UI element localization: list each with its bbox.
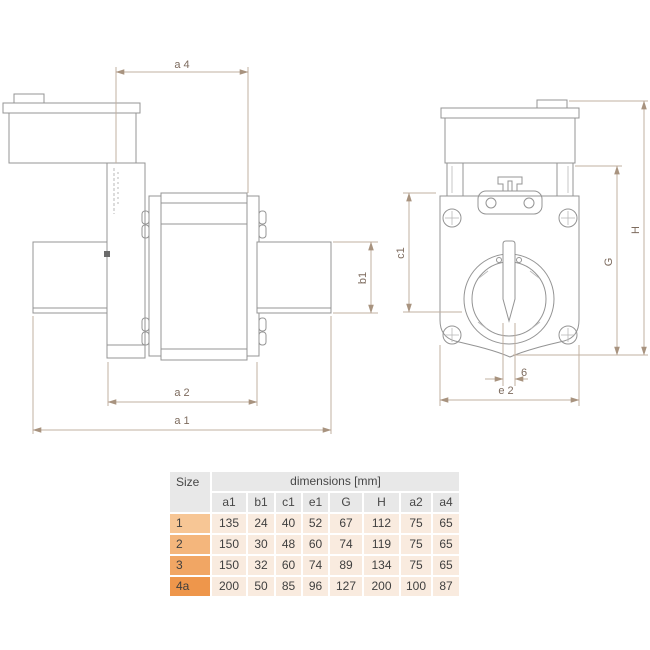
dimension-cell: 135 bbox=[212, 514, 246, 533]
dimension-cell: 40 bbox=[276, 514, 301, 533]
dim-label-a4: a 4 bbox=[174, 59, 189, 71]
dimension-cell: 50 bbox=[248, 577, 274, 596]
dim-label-c1: c1 bbox=[395, 247, 407, 259]
dimensions-table: Size dimensions [mm] a1 b1 c1 e1 G H a2 … bbox=[168, 470, 461, 598]
dimension-cell: 100 bbox=[401, 577, 431, 596]
dimension-cell: 150 bbox=[212, 535, 246, 554]
front-bracket bbox=[478, 191, 542, 214]
column-header-H: H bbox=[364, 493, 399, 512]
table-row: 1 135 24 40 52 67 112 75 65 bbox=[170, 514, 459, 533]
dimension-cell: 75 bbox=[401, 556, 431, 575]
dim-label-a1: a 1 bbox=[174, 415, 189, 427]
column-header-a1: a1 bbox=[212, 493, 246, 512]
dimension-cell: 65 bbox=[433, 535, 459, 554]
side-box-flange bbox=[3, 103, 140, 113]
dimension-cell: 60 bbox=[303, 535, 328, 554]
dimension-cell: 24 bbox=[248, 514, 274, 533]
indicator-blade bbox=[503, 241, 515, 321]
dim-label-G: G bbox=[603, 258, 615, 267]
column-header-b1: b1 bbox=[248, 493, 274, 512]
dimension-cell: 134 bbox=[364, 556, 399, 575]
dimension-cell: 67 bbox=[330, 514, 362, 533]
front-box-flange bbox=[441, 108, 579, 118]
dimension-cell: 74 bbox=[303, 556, 328, 575]
dimension-cell: 52 bbox=[303, 514, 328, 533]
table-row: 3 150 32 60 74 89 134 75 65 bbox=[170, 556, 459, 575]
size-cell: 2 bbox=[170, 535, 210, 554]
dimension-cell: 119 bbox=[364, 535, 399, 554]
size-cell: 4a bbox=[170, 577, 210, 596]
column-header-a2: a2 bbox=[401, 493, 431, 512]
table-row: 4a 200 50 85 96 127 200 100 87 bbox=[170, 577, 459, 596]
dimension-cell: 200 bbox=[212, 577, 246, 596]
dimension-cell: 30 bbox=[248, 535, 274, 554]
right-blade-contact bbox=[257, 242, 331, 313]
cartridge-body bbox=[161, 193, 247, 360]
front-key-slot bbox=[508, 181, 512, 191]
dimension-cell: 89 bbox=[330, 556, 362, 575]
dimension-cell: 65 bbox=[433, 556, 459, 575]
column-header-c1: c1 bbox=[276, 493, 301, 512]
holder-latch-detail bbox=[104, 251, 110, 257]
size-cell: 1 bbox=[170, 514, 210, 533]
indicator-knob bbox=[464, 241, 554, 344]
size-cell: 3 bbox=[170, 556, 210, 575]
size-column-header: Size bbox=[170, 472, 210, 512]
dimension-cell: 32 bbox=[248, 556, 274, 575]
dim-label-blade-width: 6 bbox=[521, 367, 527, 379]
side-box-tab bbox=[14, 94, 44, 103]
dimension-cell: 48 bbox=[276, 535, 301, 554]
dimension-cell: 127 bbox=[330, 577, 362, 596]
side-box-body bbox=[9, 113, 136, 163]
dimension-cell: 150 bbox=[212, 556, 246, 575]
dimension-cell: 75 bbox=[401, 535, 431, 554]
side-holder-column bbox=[107, 163, 145, 358]
dimension-cell: 60 bbox=[276, 556, 301, 575]
dimension-cell: 85 bbox=[276, 577, 301, 596]
left-blade-contact bbox=[33, 242, 107, 313]
column-header-G: G bbox=[330, 493, 362, 512]
dim-label-a2: a 2 bbox=[174, 387, 189, 399]
dimension-cell: 65 bbox=[433, 514, 459, 533]
dimension-cell: 112 bbox=[364, 514, 399, 533]
cartridge-left-cap bbox=[149, 196, 161, 356]
front-box-body bbox=[445, 118, 575, 163]
column-header-a4: a4 bbox=[433, 493, 459, 512]
drawing-views: a 4 b1 a 2 a 1 bbox=[0, 0, 650, 460]
dimension-cell: 200 bbox=[364, 577, 399, 596]
dimension-cell: 75 bbox=[401, 514, 431, 533]
front-view bbox=[440, 100, 579, 357]
front-box-tab bbox=[537, 100, 567, 108]
side-view bbox=[3, 94, 331, 360]
dim-label-H: H bbox=[630, 226, 642, 234]
dimension-cell: 96 bbox=[303, 577, 328, 596]
fuse-dimension-drawing-page: a 4 b1 a 2 a 1 bbox=[0, 0, 650, 650]
column-header-e1: e1 bbox=[303, 493, 328, 512]
dim-label-e2: e 2 bbox=[498, 385, 513, 397]
dimension-cell: 87 bbox=[433, 577, 459, 596]
dimensions-header: dimensions [mm] bbox=[212, 472, 459, 491]
table-subheader-row: a1 b1 c1 e1 G H a2 a4 bbox=[170, 493, 459, 512]
table-row: 2 150 30 48 60 74 119 75 65 bbox=[170, 535, 459, 554]
table-header-row: Size dimensions [mm] bbox=[170, 472, 459, 491]
dimension-cell: 74 bbox=[330, 535, 362, 554]
front-view-dimensions: c1 G H 6 e 2 bbox=[395, 101, 648, 406]
dim-label-b1: b1 bbox=[357, 272, 369, 284]
